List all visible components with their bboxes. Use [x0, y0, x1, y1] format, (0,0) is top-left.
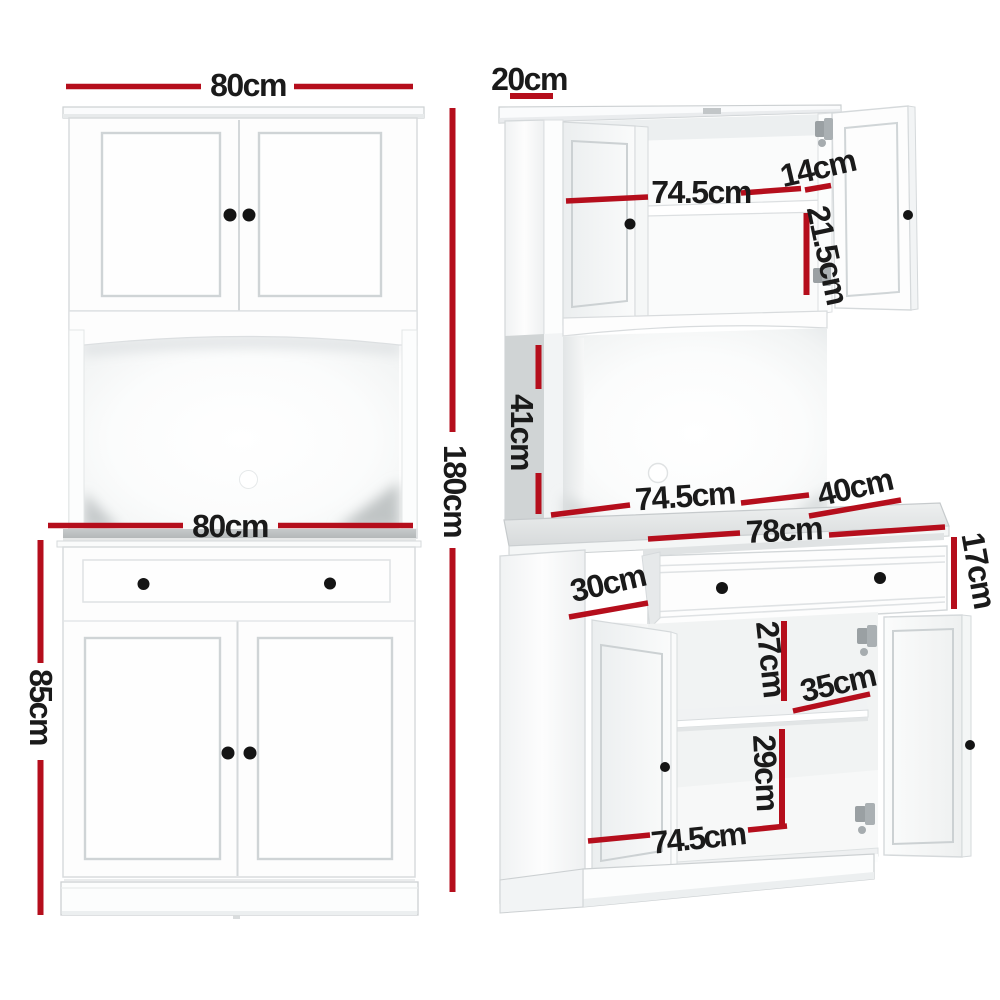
svg-text:74.5cm: 74.5cm — [634, 475, 736, 518]
svg-text:80cm: 80cm — [192, 508, 268, 544]
svg-text:80cm: 80cm — [210, 67, 286, 103]
svg-text:29cm: 29cm — [746, 734, 786, 812]
svg-text:85cm: 85cm — [23, 669, 59, 745]
svg-text:20cm: 20cm — [491, 61, 567, 97]
svg-text:78cm: 78cm — [745, 510, 823, 550]
svg-text:41cm: 41cm — [504, 394, 540, 470]
svg-text:180cm: 180cm — [437, 445, 473, 537]
svg-text:74.5cm: 74.5cm — [651, 174, 751, 210]
